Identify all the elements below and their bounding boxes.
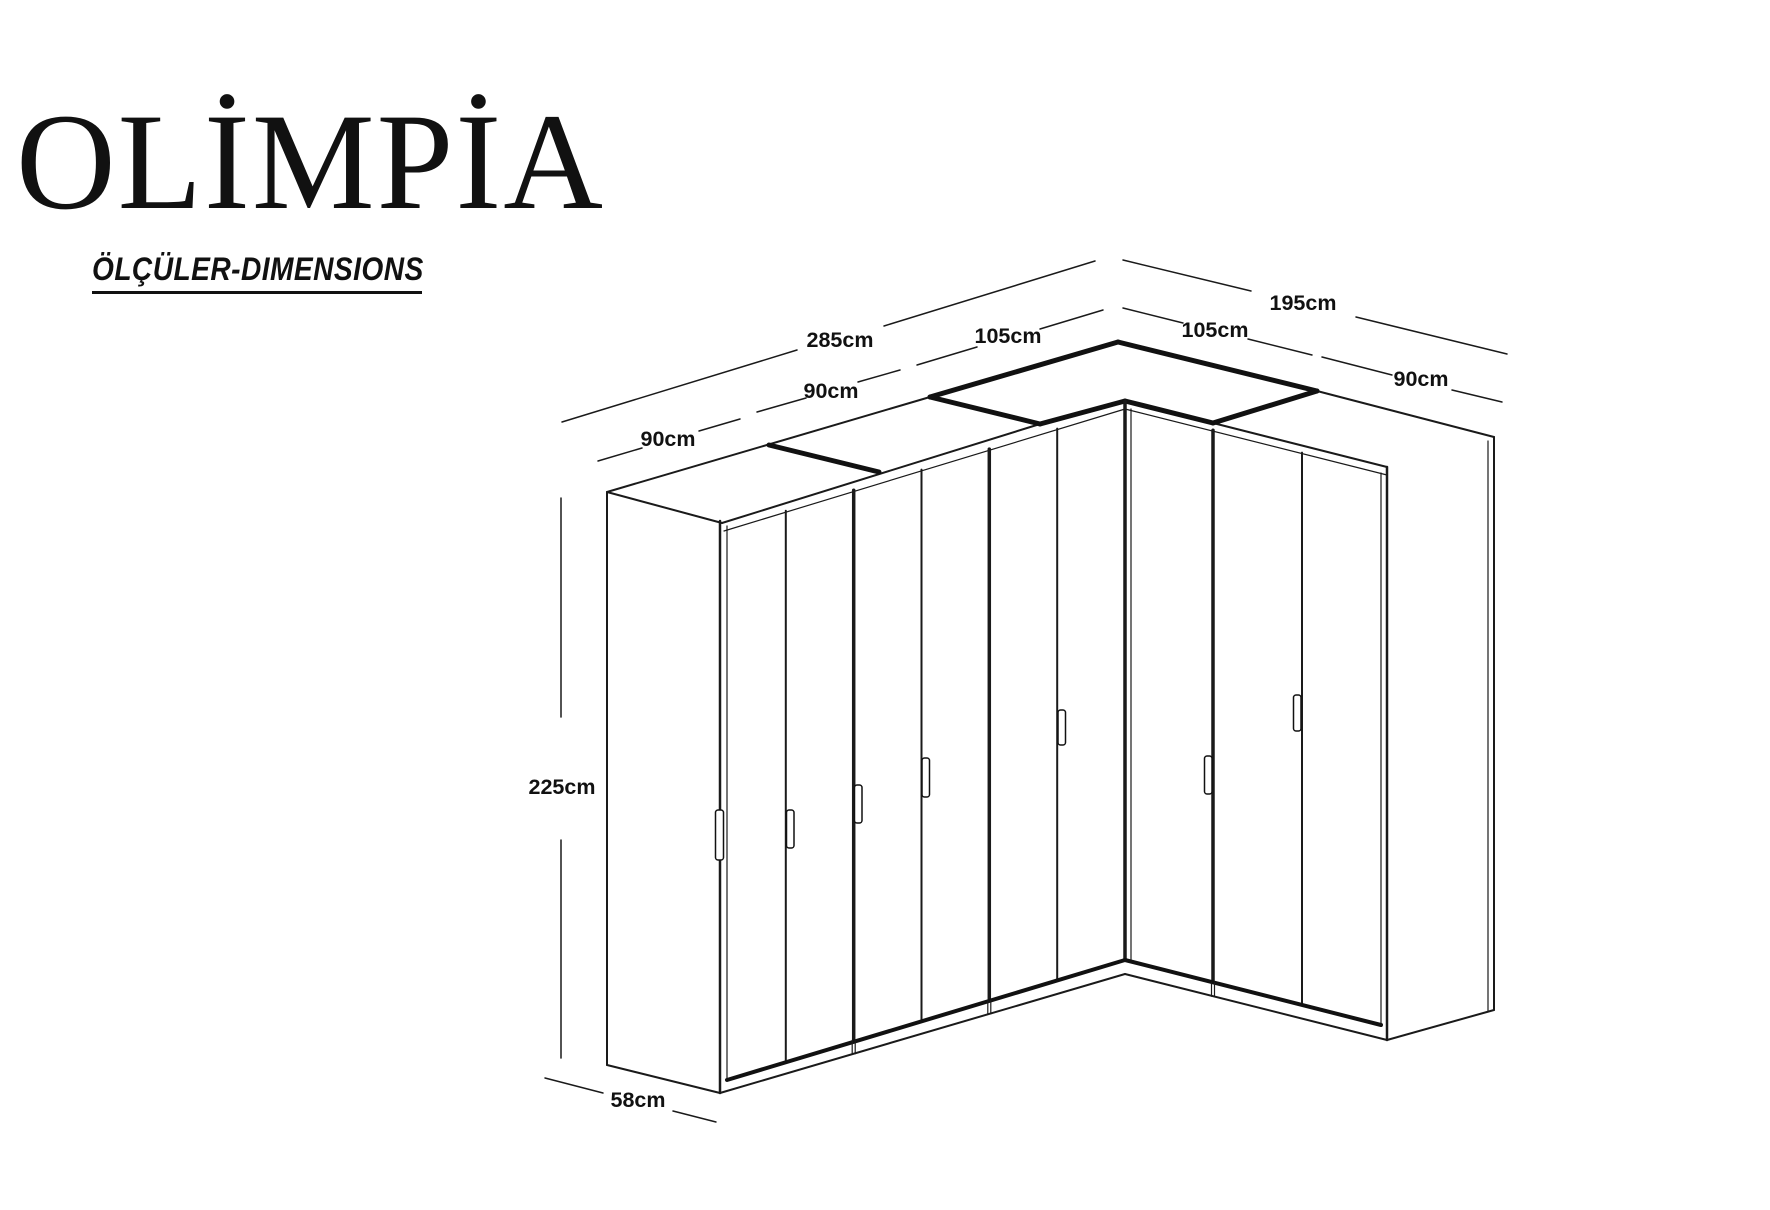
wardrobe-outline: [607, 391, 1494, 1093]
dim-label-left-total: 285cm: [807, 328, 874, 352]
dim-label-left-corner-module: 105cm: [975, 324, 1042, 348]
inner-corner-edge: [1125, 401, 1131, 961]
dim-label-right-module: 90cm: [1394, 367, 1449, 391]
door-handle: [1205, 756, 1213, 794]
door-handle: [922, 758, 930, 797]
dim-label-right-corner-module: 105cm: [1182, 318, 1249, 342]
door-handle: [716, 810, 724, 860]
dim-label-right-total: 195cm: [1270, 291, 1337, 315]
door-dividers: [786, 429, 1302, 1061]
dim-label-height: 225cm: [529, 775, 596, 799]
dim-label-left-module-2: 90cm: [804, 379, 859, 403]
subtitle-underline: [92, 291, 422, 294]
brand-title: OLİMPİA: [16, 93, 605, 231]
dim-label-depth: 58cm: [611, 1088, 666, 1112]
top-face-module-lines: [769, 342, 1317, 472]
door-handle: [787, 810, 795, 848]
dim-label-left-module-1: 90cm: [641, 427, 696, 451]
door-handle: [1058, 710, 1066, 745]
door-handle: [855, 785, 863, 823]
page: OLİMPİA ÖLÇÜLER-DIMENSIONS: [0, 0, 1770, 1210]
door-handle: [1294, 695, 1302, 731]
dimension-lines: [545, 260, 1507, 1122]
brand-subtitle: ÖLÇÜLER-DIMENSIONS: [92, 251, 424, 288]
